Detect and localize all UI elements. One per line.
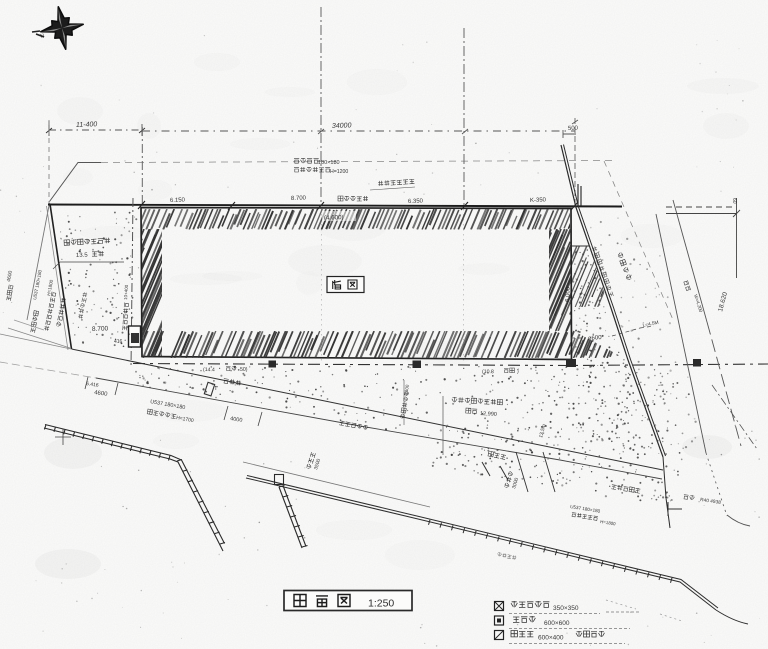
svg-text:K-350: K-350 [530,197,547,204]
svg-text:600×600: 600×600 [544,620,570,627]
svg-text:ø600: ø600 [588,335,603,342]
svg-text:500: 500 [568,126,579,132]
svg-text:1:250: 1:250 [368,598,394,610]
svg-text:): ) [517,369,519,375]
svg-text:180×180: 180×180 [318,160,340,166]
svg-text:13.5: 13.5 [76,253,89,259]
svg-text:8.700: 8.700 [92,325,109,333]
svg-text:H=1200: H=1200 [330,169,348,175]
svg-text:34000: 34000 [332,122,352,130]
svg-text:6.350: 6.350 [408,198,424,205]
svg-text:600×400: 600×400 [538,635,564,642]
svg-text:50): 50) [240,367,248,373]
svg-text:6.000: 6.000 [565,286,572,302]
svg-text:8.700: 8.700 [291,195,307,202]
svg-text:350×350: 350×350 [553,605,579,612]
svg-text:60: 60 [731,198,737,204]
svg-text:(14.4: (14.4 [203,367,215,373]
